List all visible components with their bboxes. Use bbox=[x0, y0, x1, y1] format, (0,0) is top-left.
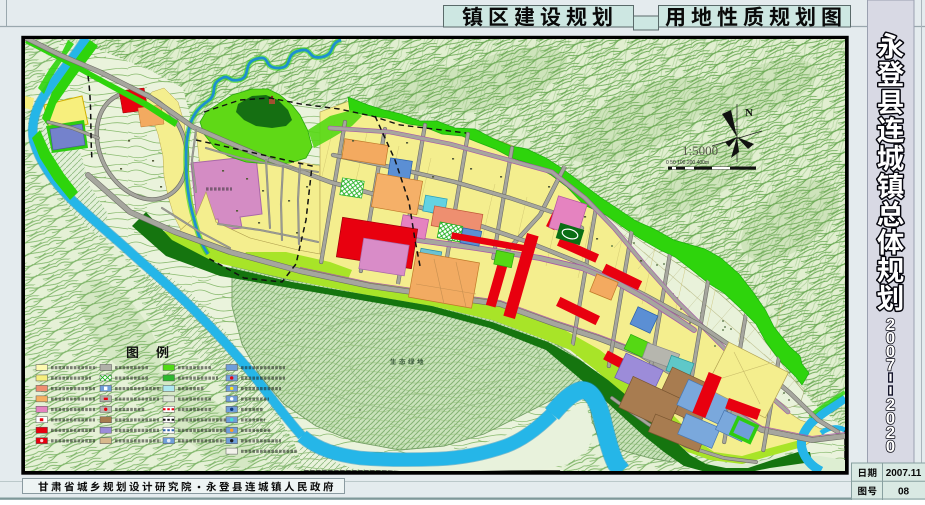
svg-text:7: 7 bbox=[886, 356, 895, 375]
svg-text:N: N bbox=[745, 107, 753, 119]
svg-text:1:5000: 1:5000 bbox=[682, 143, 718, 158]
svg-text:0: 0 bbox=[886, 437, 895, 456]
svg-text:2007.11: 2007.11 bbox=[886, 468, 922, 479]
svg-text:08: 08 bbox=[898, 486, 910, 497]
svg-text:0 50 100 200: 0 50 100 200 400m bbox=[666, 160, 709, 166]
